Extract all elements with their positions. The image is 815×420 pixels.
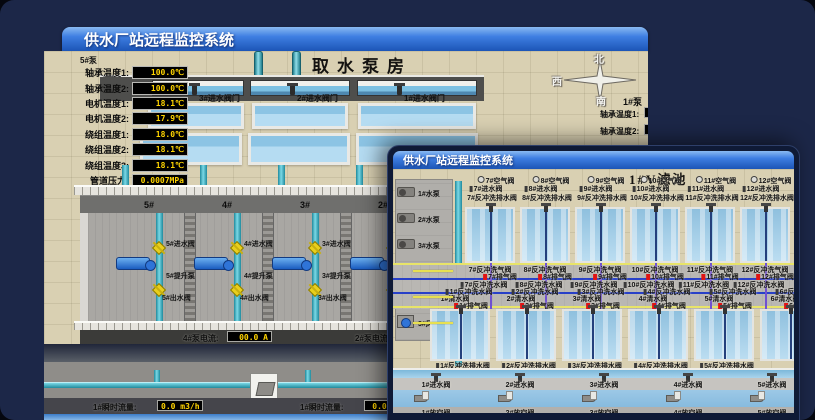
filter-cell[interactable] [496,309,556,361]
pipe-stub-icon [154,370,160,382]
pump-current-label: 4#泵电流: [183,333,219,344]
pool-inlet-valve-label: 1#进水阀 [422,380,451,390]
riser-pipe-icon [254,51,263,77]
front-window-titlebar[interactable]: 供水厂站远程监控系统 [393,151,794,169]
backwash-pump[interactable]: 1#水泵 [395,182,449,204]
panel-row-value[interactable]: 17.9℃ [132,112,188,125]
instant-flow-value[interactable]: 0.0 m3/h [157,400,203,411]
inlet-valve-icon[interactable] [397,83,402,95]
pump-bay-number: 5# [144,200,154,210]
filter-cell[interactable] [760,309,794,361]
pool-inlet-valve-label: 5#进水阀 [758,380,787,390]
building-ledge [74,185,434,195]
equipment-label: 2#水泵 [418,215,440,225]
cell-divider [724,311,726,359]
settling-basin [358,103,476,129]
empty-valve-label: 5#放空阀 [758,408,787,413]
cell-divider [790,311,792,359]
equipment-label: 1#水泵 [418,189,440,199]
building-ledge [74,321,434,330]
cell-divider [490,209,492,261]
pump-current-value[interactable]: 00.0 A [227,331,272,342]
water-pump-icon [397,239,415,249]
empty-valve-label: 2#放空阀 [506,408,535,413]
backwash-drain-valve-label: 10#反冲洗排水阀 [630,193,684,203]
bay-outlet-valve-label: 5#出水阀 [162,293,191,303]
cell-divider [765,209,767,261]
bay-inlet-valve-label: 3#进水阀 [322,239,351,249]
filter-cell[interactable] [694,309,754,361]
lift-pump-icon[interactable] [194,257,228,270]
pump-column-pipe-icon [156,213,163,330]
inlet-valve-icon[interactable] [308,241,322,255]
cell-divider [658,311,660,359]
backwash-pump[interactable]: 2#水泵 [395,208,449,230]
filter-cell[interactable] [630,207,680,263]
bay-inlet-valve-label: 5#进水阀 [166,239,195,249]
cell-valve-icon[interactable] [591,306,595,314]
compass-west-label: 西 [552,73,562,88]
cell-valve-icon[interactable] [489,204,493,212]
blower-air-pipe-icon [413,322,453,324]
pump-room-floor: 5#进水阀5#提升泵5#出水阀4#进水阀4#提升泵4#出水阀3#进水阀3#提升泵… [80,213,400,330]
panel-row-label: 绕组温度2: [85,143,129,156]
panel-row-value[interactable]: 18.0℃ [132,128,188,141]
empty-valve-label: 3#放空阀 [590,408,619,413]
filter-cell[interactable] [628,309,688,361]
filter-cell[interactable] [430,309,490,361]
desktop: 供水厂站远程监控系统 取水泵房 3#进水阀门2#进水阀门1#进水阀门 5#泵 轴… [0,0,815,420]
pump-current-label: 2#泵电流: [355,333,391,344]
bay-inlet-valve-label: 4#进水阀 [244,239,273,249]
bay-pump-label: 5#提升泵 [166,271,195,281]
pump-bay-number: 3# [300,200,310,210]
filter-cell[interactable] [465,207,515,263]
bay-outlet-valve-label: 3#出水阀 [318,293,347,303]
panel-row-label: 轴承温度1: [85,66,129,79]
panel-row: 绕组温度1:18.0℃ [44,127,190,142]
lift-pump-icon[interactable] [116,257,150,270]
filter-cell[interactable] [520,207,570,263]
panel-row: 绕组温度2:18.1℃ [44,142,190,157]
window-filter-pool: 供水厂站远程监控系统 1#V滤池 1#水泵2#水泵3#水泵1#风机2#风机3#风… [387,145,800,420]
backwash-drain-valve-label: 12#反冲洗排水阀 [740,193,794,203]
settling-basin [248,133,350,165]
pump-column-pipe-icon [234,213,241,330]
panel-row-value[interactable]: 18.1℃ [132,143,188,156]
pump-bay-number: 4# [222,200,232,210]
instant-flow-label: 1#瞬时流量: [93,402,137,413]
filter-cell[interactable] [740,207,790,263]
inlet-valve-icon[interactable] [152,241,166,255]
panel-row: 轴承温度1:100.0℃ [44,65,190,80]
empty-valve-icon[interactable] [666,395,680,402]
bay-pump-label: 3#提升泵 [322,271,351,281]
cell-valve-icon[interactable] [459,306,463,314]
bearing-temp-label: 轴承温度2: [600,126,639,137]
compass-north-label: 北 [594,51,604,66]
panel-row: 轴承温度2:100.0℃ [44,80,190,95]
backwash-drain-valve-label: 7#反冲洗排水阀 [467,193,517,203]
bearing-temp-label: 轴承温度1: [600,109,639,120]
water-pump-icon [397,213,415,223]
bearing-temp-value[interactable] [644,124,648,135]
compass-south-label: 南 [596,93,606,108]
cell-valve-icon[interactable] [764,204,768,212]
panel-row-value[interactable]: 18.1℃ [132,97,188,110]
pump-room-wall: 5#4#3#2# [80,195,400,213]
lift-pump-icon[interactable] [350,257,384,270]
empty-valve-icon[interactable] [414,395,428,402]
cell-valve-icon[interactable] [599,204,603,212]
panel-row-label: 电机温度2: [85,112,129,125]
cell-valve-icon[interactable] [654,204,658,212]
panel-row-label: 电机温度1: [85,97,129,110]
filter-cell[interactable] [685,207,735,263]
instant-flow-label: 1#瞬时流量: [300,402,344,413]
cell-valve-icon[interactable] [709,204,713,212]
inlet-valve-icon[interactable] [192,83,197,95]
scene-title-intake-pump-house: 取水泵房 [312,52,412,77]
bay-pump-label: 4#提升泵 [244,271,273,281]
inlet-valve-icon[interactable] [290,83,295,95]
pool-inlet-valve-label: 3#进水阀 [590,380,619,390]
backwash-pump[interactable]: 3#水泵 [395,234,449,256]
inlet-water [393,368,794,378]
cell-divider [460,311,462,359]
equipment-label: 3#水泵 [418,241,440,251]
filter-pool-scene: 1#V滤池 1#水泵2#水泵3#水泵1#风机2#风机3#风机 7#空气阀8#空气… [393,169,794,413]
empty-valve-label: 1#放空阀 [422,408,451,413]
settling-basin [252,103,348,129]
cell-valve-icon[interactable] [789,306,793,314]
cell-divider [545,209,547,261]
bearing-temp-value[interactable] [644,107,648,118]
cell-valve-icon[interactable] [723,306,727,314]
blower-icon [397,315,414,328]
panel-row-value[interactable]: 18.1℃ [132,159,188,172]
cell-valve-icon[interactable] [544,204,548,212]
blower-air-pipe-icon [413,270,453,272]
inlet-valve-icon[interactable] [230,241,244,255]
cell-divider [526,311,528,359]
panel-row-label: 轴承温度2: [85,82,129,95]
pump-panel-header: 5#泵 [80,55,97,66]
filter-cell[interactable] [575,207,625,263]
cell-valve-icon[interactable] [525,306,529,314]
front-window-title: 供水厂站远程监控系统 [403,152,513,168]
panel-row-label: 绕组温度1: [85,128,129,141]
filter-cell[interactable] [562,309,622,361]
right-pump-header: 1#泵 [623,95,642,108]
cell-divider [655,209,657,261]
empty-valve-icon[interactable] [750,395,764,402]
pool-inlet-valve-label: 2#进水阀 [506,380,535,390]
empty-valve-label: 4#放空阀 [674,408,703,413]
panel-row: 电机温度2:17.9℃ [44,111,190,126]
backwash-drain-valve-label: 11#反冲洗排水阀 [685,193,738,203]
blower-air-pipe-icon [413,296,453,298]
empty-valve-icon[interactable] [582,395,596,402]
panel-row: 绕组温度3:18.1℃ [44,157,190,172]
pool-inlet-valve-label: 4#进水阀 [674,380,703,390]
back-window-title: 供水厂站远程监控系统 [84,29,234,50]
water-pump-icon [397,187,415,197]
panel-row-value[interactable]: 100.0℃ [132,66,188,79]
pipe-stub-icon [305,370,311,382]
pump-data-panel: 5#泵 轴承温度1:100.0℃轴承温度2:100.0℃电机温度1:18.1℃电… [44,65,190,204]
panel-row-value[interactable]: 100.0℃ [132,82,188,95]
cell-divider [600,209,602,261]
back-window-titlebar[interactable]: 供水厂站远程监控系统 [62,27,648,51]
cell-valve-icon[interactable] [657,306,661,314]
backwash-drain-valve-label: 8#反冲洗排水阀 [522,193,572,203]
lift-pump-icon[interactable] [272,257,306,270]
cell-divider [710,209,712,261]
riser-pipe-icon [292,51,301,77]
bay-outlet-valve-label: 4#出水阀 [240,293,269,303]
cell-divider [592,311,594,359]
pump-column-pipe-icon [312,213,319,330]
backwash-drain-valve-label: 9#反冲洗排水阀 [577,193,627,203]
panel-row: 电机温度1:18.1℃ [44,96,190,111]
empty-valve-icon[interactable] [498,395,512,402]
